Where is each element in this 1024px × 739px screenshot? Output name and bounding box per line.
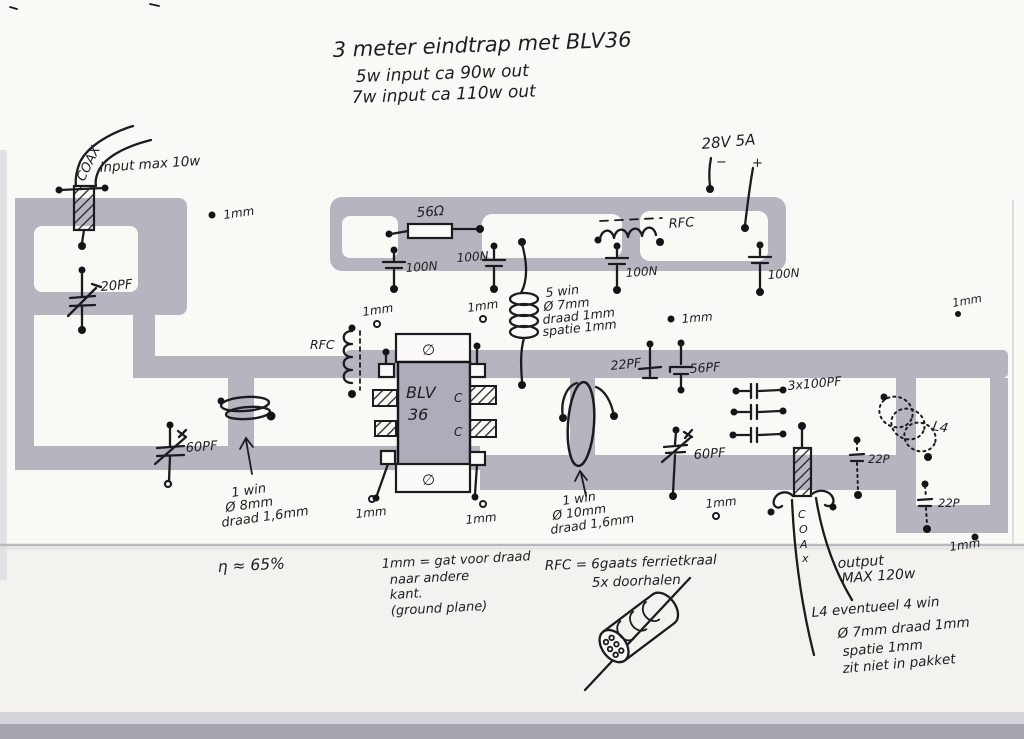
cap-value: 20PF: [100, 277, 134, 295]
coax-letter: C: [798, 508, 806, 521]
schematic-drawing: 3 meter eindtrap met BLV36 5w input ca 9…: [0, 0, 1024, 739]
cap-value: 100N: [456, 249, 489, 265]
screw-hole-symbol: ∅: [422, 471, 435, 489]
rfc-label: RFC: [668, 215, 695, 232]
scanned-schematic-page: 3 meter eindtrap met BLV36 5w input ca 9…: [0, 0, 1024, 739]
pin-base-upper: [373, 390, 397, 406]
cap-value: 56PF: [689, 359, 721, 376]
cap-value: 22P: [938, 496, 960, 510]
svg-text:5x doorhalen: 5x doorhalen: [592, 572, 681, 591]
screw-hole-symbol: ∅: [422, 341, 435, 359]
rfc-label: RFC: [310, 337, 335, 352]
coax-letter: A: [799, 538, 808, 551]
transistor-name: BLV: [406, 383, 437, 402]
paper-left-edge: [0, 150, 7, 580]
collector-pin-label: C: [454, 391, 463, 405]
pin-base-lower: [375, 421, 396, 436]
pin-collector-upper: [470, 386, 496, 404]
cap-value: 22P: [868, 452, 890, 466]
photo-edge-light: [0, 712, 1024, 725]
coax-feedthrough: [794, 448, 811, 496]
svg-text:kant.: kant.: [389, 586, 423, 603]
efficiency-note: η ≈ 65%: [217, 555, 285, 576]
coax-letter: O: [799, 523, 808, 536]
cap-value: 60PF: [693, 446, 726, 463]
svg-text:η ≈ 65%: η ≈ 65%: [217, 555, 285, 576]
coax-feedthrough: [74, 186, 94, 230]
transistor-name: 36: [408, 405, 428, 424]
coil-label: L4: [931, 419, 949, 436]
hole-label: 1mm: [681, 309, 713, 326]
pin-pad: [381, 451, 395, 464]
resistor-body: [408, 224, 452, 238]
pin-pad: [470, 364, 485, 377]
minus-terminal: −: [716, 155, 727, 170]
collector-pin-label: C: [454, 425, 463, 439]
resistor-value: 56Ω: [416, 203, 445, 221]
cap-value: 100N: [405, 259, 438, 275]
cap-value: 100N: [625, 264, 658, 280]
cap-value: 100N: [767, 266, 800, 282]
pin-pad: [470, 452, 485, 465]
pin-collector-lower: [470, 420, 496, 437]
pin-pad: [379, 364, 394, 377]
cap-value: 60PF: [185, 439, 218, 456]
coax-letter: x: [801, 552, 809, 565]
photo-edge-dark: [0, 724, 1024, 739]
